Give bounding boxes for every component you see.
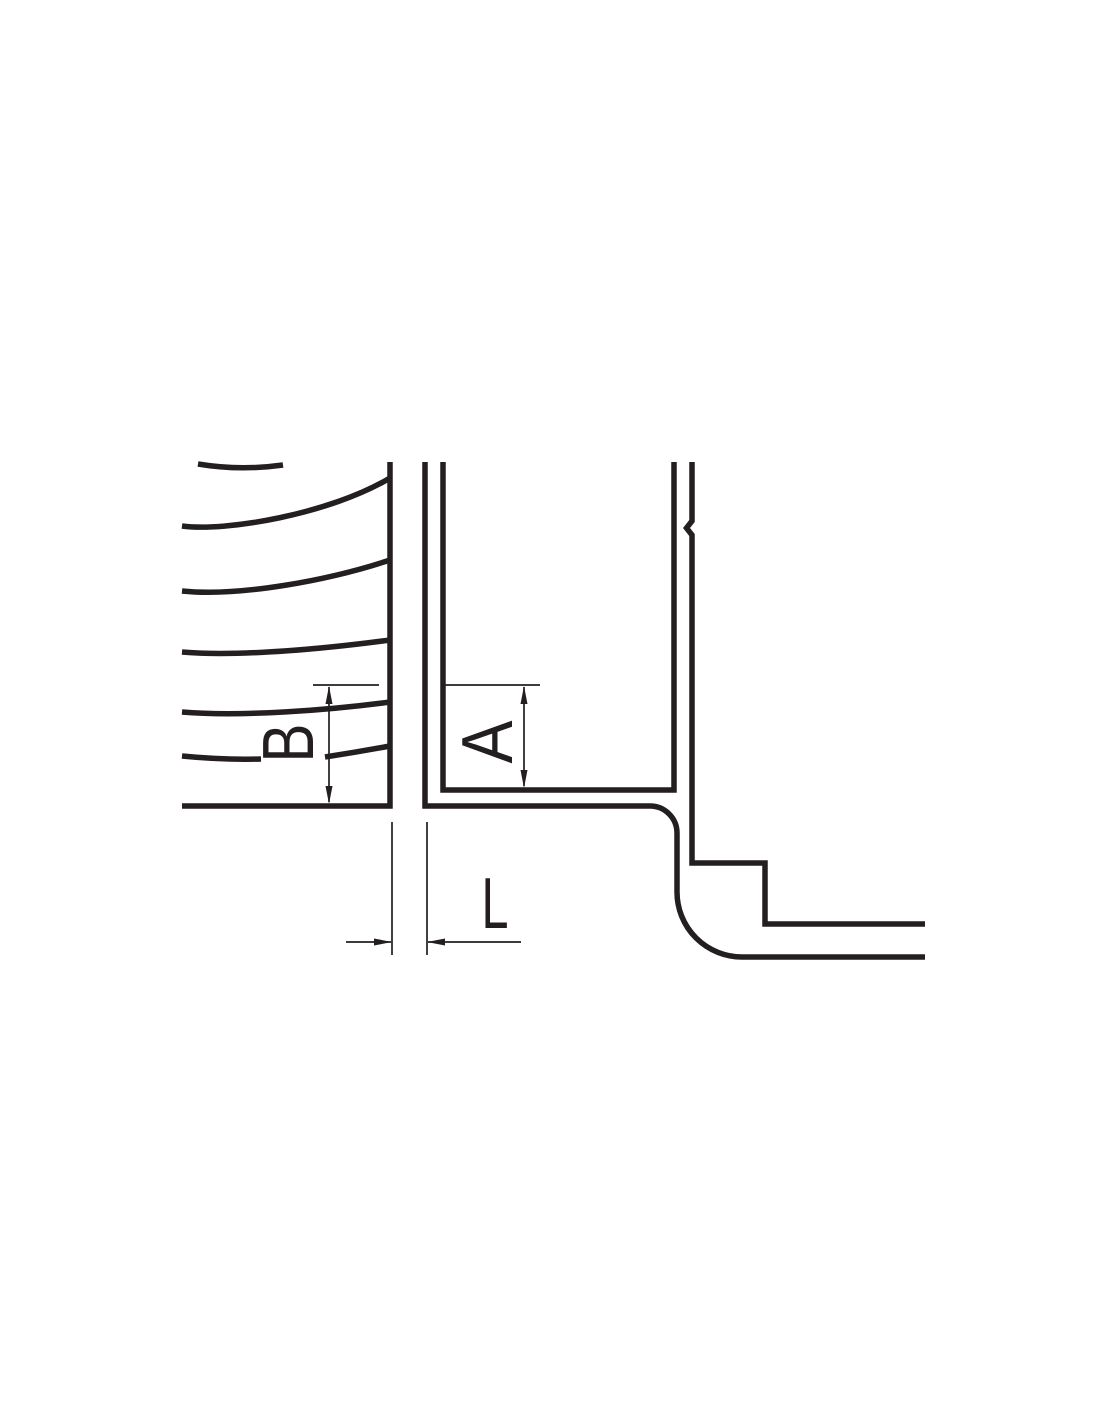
dim-b-arrow-up-icon	[326, 686, 333, 704]
dimension-l: L	[346, 822, 521, 955]
impeller-vane-curve-1	[198, 464, 283, 468]
dim-l-arrow-left-icon	[427, 939, 445, 946]
label-b: B	[249, 724, 329, 763]
dim-a-arrow-down-icon	[521, 770, 528, 788]
impeller-vane-curve-6-right	[325, 746, 390, 757]
casing-right-stepped-profile	[687, 462, 926, 924]
impeller-vane-curve-2	[182, 478, 390, 527]
impeller-vane-curve-5	[182, 702, 390, 714]
impeller-vane-curve-3	[182, 560, 390, 592]
impeller-vane-curve-4	[182, 640, 390, 653]
technical-drawing: B A L	[0, 0, 1100, 1422]
label-l: L	[482, 864, 509, 944]
label-a: A	[448, 721, 528, 764]
drawing-canvas: B A L	[0, 0, 1100, 1422]
dim-b-arrow-down-icon	[326, 786, 333, 804]
dimension-a: A	[442, 685, 540, 788]
dim-a-arrow-up-icon	[521, 686, 528, 704]
dimension-b: B	[249, 685, 379, 804]
dim-l-arrow-right-icon	[374, 939, 392, 946]
